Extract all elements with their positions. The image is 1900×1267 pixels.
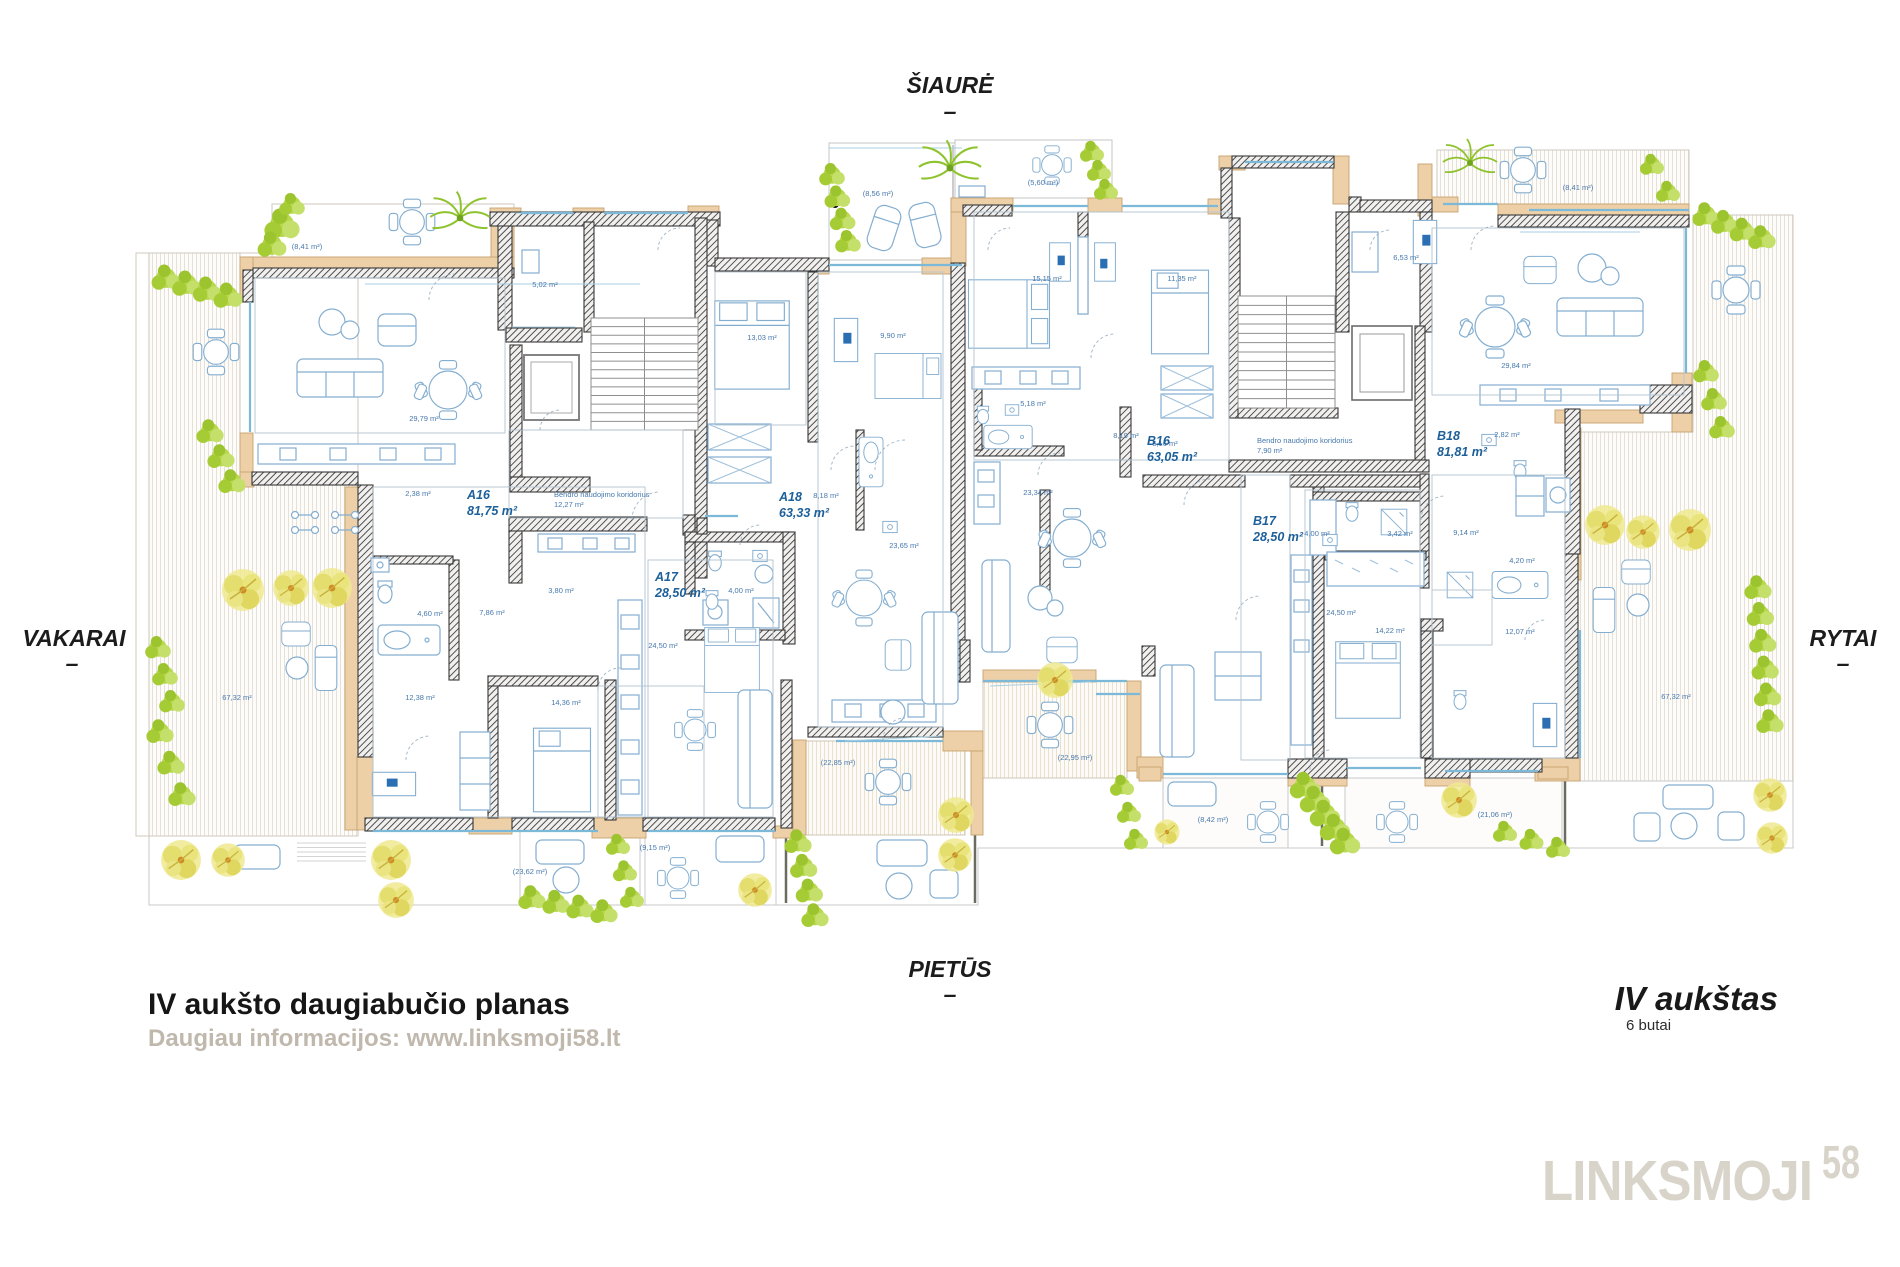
svg-text:81,81 m²: 81,81 m² xyxy=(1437,445,1488,459)
svg-text:23,34 m²: 23,34 m² xyxy=(1023,488,1053,497)
svg-text:67,32 m²: 67,32 m² xyxy=(222,693,252,702)
svg-text:24,50 m²: 24,50 m² xyxy=(1326,608,1356,617)
svg-text:(8,41 m²): (8,41 m²) xyxy=(1563,183,1594,192)
svg-text:3,42 m²: 3,42 m² xyxy=(1387,529,1413,538)
svg-text:4,00 m²: 4,00 m² xyxy=(728,586,754,595)
svg-text:2,82 m²: 2,82 m² xyxy=(1494,430,1520,439)
svg-text:28,50 m²: 28,50 m² xyxy=(654,586,706,600)
svg-text:11,35 m²: 11,35 m² xyxy=(1167,274,1197,283)
svg-text:15,15 m²: 15,15 m² xyxy=(1032,274,1062,283)
svg-text:13,03 m²: 13,03 m² xyxy=(747,333,777,342)
svg-text:A17: A17 xyxy=(654,570,679,584)
svg-text:(22,85 m²): (22,85 m²) xyxy=(821,758,856,767)
svg-text:LINKSMOJI: LINKSMOJI xyxy=(1542,1149,1812,1213)
svg-text:(21,06 m²): (21,06 m²) xyxy=(1478,810,1513,819)
svg-text:2,38 m²: 2,38 m² xyxy=(405,489,431,498)
svg-text:58: 58 xyxy=(1822,1136,1860,1188)
svg-text:(8,42 m²): (8,42 m²) xyxy=(1198,815,1229,824)
svg-text:VAKARAI: VAKARAI xyxy=(22,625,126,651)
svg-text:Bendro naudojimo koridorius: Bendro naudojimo koridorius xyxy=(554,490,650,499)
svg-text:–: – xyxy=(944,98,957,124)
svg-text:67,32 m²: 67,32 m² xyxy=(1661,692,1691,701)
svg-text:–: – xyxy=(944,981,957,1007)
svg-text:28,50 m²: 28,50 m² xyxy=(1252,530,1304,544)
svg-text:6 butai: 6 butai xyxy=(1626,1017,1671,1034)
svg-text:6,53 m²: 6,53 m² xyxy=(1393,253,1419,262)
svg-text:7,90 m²: 7,90 m² xyxy=(1257,446,1283,455)
svg-text:–: – xyxy=(1837,650,1850,676)
svg-text:14,22 m²: 14,22 m² xyxy=(1375,626,1405,635)
svg-text:29,79 m²: 29,79 m² xyxy=(409,414,439,423)
svg-text:9,14 m²: 9,14 m² xyxy=(1453,528,1479,537)
svg-text:8,18 m²: 8,18 m² xyxy=(813,491,839,500)
svg-text:23,65 m²: 23,65 m² xyxy=(889,541,919,550)
svg-text:8,19 m²: 8,19 m² xyxy=(1113,431,1139,440)
svg-text:7,86 m²: 7,86 m² xyxy=(479,608,505,617)
svg-text:12,07 m²: 12,07 m² xyxy=(1505,627,1535,636)
svg-text:29,84 m²: 29,84 m² xyxy=(1501,361,1531,370)
svg-text:IV aukštas: IV aukštas xyxy=(1615,980,1778,1017)
svg-text:5,02 m²: 5,02 m² xyxy=(532,280,558,289)
svg-text:B16: B16 xyxy=(1147,434,1171,448)
svg-text:Daugiau informacijos: www.link: Daugiau informacijos: www.linksmoji58.lt xyxy=(148,1025,621,1052)
svg-text:63,05 m²: 63,05 m² xyxy=(1147,450,1198,464)
svg-text:IV aukšto daugiabučio planas: IV aukšto daugiabučio planas xyxy=(148,988,570,1021)
svg-text:–: – xyxy=(66,650,79,676)
svg-text:24,50 m²: 24,50 m² xyxy=(648,641,678,650)
svg-text:PIETŪS: PIETŪS xyxy=(908,956,992,982)
svg-text:63,33 m²: 63,33 m² xyxy=(779,506,830,520)
svg-text:(22,95 m²): (22,95 m²) xyxy=(1058,753,1093,762)
svg-text:Bendro naudojimo koridorius: Bendro naudojimo koridorius xyxy=(1257,436,1353,445)
svg-text:ŠIAURĖ: ŠIAURĖ xyxy=(907,71,995,98)
svg-text:(8,56 m²): (8,56 m²) xyxy=(863,189,894,198)
svg-text:5,18 m²: 5,18 m² xyxy=(1020,399,1046,408)
svg-text:(8,41 m²): (8,41 m²) xyxy=(292,242,323,251)
svg-text:(23,62 m²): (23,62 m²) xyxy=(513,867,548,876)
svg-text:81,75 m²: 81,75 m² xyxy=(467,504,518,518)
svg-text:12,27 m²: 12,27 m² xyxy=(554,500,584,509)
svg-text:RYTAI: RYTAI xyxy=(1810,625,1877,651)
svg-text:3,80 m²: 3,80 m² xyxy=(548,586,574,595)
svg-text:(5,60 m²): (5,60 m²) xyxy=(1028,178,1059,187)
svg-text:(9,15 m²): (9,15 m²) xyxy=(640,843,671,852)
svg-text:14,36 m²: 14,36 m² xyxy=(551,698,581,707)
svg-text:A16: A16 xyxy=(466,488,491,502)
svg-text:4,00 m²: 4,00 m² xyxy=(1304,529,1330,538)
svg-text:B18: B18 xyxy=(1437,429,1460,443)
svg-text:4,60 m²: 4,60 m² xyxy=(417,609,443,618)
svg-text:12,38 m²: 12,38 m² xyxy=(405,693,435,702)
svg-text:9,90 m²: 9,90 m² xyxy=(880,331,906,340)
svg-text:4,20 m²: 4,20 m² xyxy=(1509,556,1535,565)
svg-text:B17: B17 xyxy=(1253,514,1277,528)
svg-text:A18: A18 xyxy=(778,490,802,504)
